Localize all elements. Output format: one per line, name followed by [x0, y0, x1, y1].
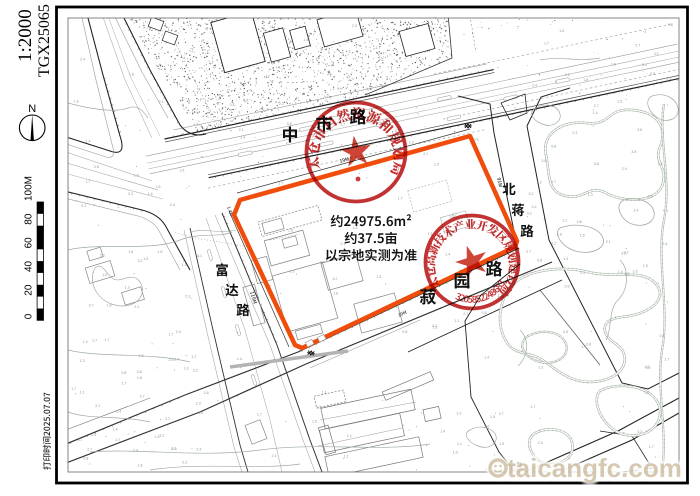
svg-text:1.6: 1.6 — [559, 29, 564, 33]
svg-text:1.1: 1.1 — [80, 391, 85, 395]
svg-text:3.2: 3.2 — [624, 250, 629, 254]
svg-text:2.3: 2.3 — [352, 24, 357, 28]
svg-text:2.3: 2.3 — [538, 441, 543, 445]
svg-text:1.4: 1.4 — [563, 257, 568, 261]
svg-text:2.3: 2.3 — [128, 192, 133, 196]
svg-text:1.8: 1.8 — [658, 162, 663, 166]
svg-text:1.3: 1.3 — [376, 275, 381, 279]
svg-text:1.7: 1.7 — [86, 180, 91, 184]
svg-text:1.4: 1.4 — [148, 192, 153, 196]
svg-text:1.7: 1.7 — [278, 182, 283, 186]
svg-text:2.7: 2.7 — [526, 250, 531, 254]
svg-text:1.1: 1.1 — [344, 454, 349, 458]
svg-text:3.8: 3.8 — [541, 159, 546, 163]
svg-text:0: 0 — [24, 313, 35, 319]
svg-text:N: N — [28, 103, 36, 115]
svg-text:2.7: 2.7 — [340, 123, 345, 127]
svg-text:1.6: 1.6 — [577, 220, 582, 224]
svg-text:1.7: 1.7 — [105, 338, 110, 342]
svg-text:2.3: 2.3 — [565, 73, 570, 77]
svg-text:1.8: 1.8 — [107, 304, 112, 308]
svg-text:1.4: 1.4 — [353, 226, 358, 230]
svg-text:1.7: 1.7 — [191, 355, 196, 359]
svg-text:2.3: 2.3 — [185, 294, 190, 298]
svg-text:0.8: 0.8 — [565, 285, 570, 289]
svg-text:2.2: 2.2 — [100, 254, 105, 258]
svg-text:2.4: 2.4 — [240, 136, 245, 140]
svg-text:3.2: 3.2 — [138, 259, 143, 263]
svg-text:3.8: 3.8 — [94, 165, 99, 169]
svg-text:2.4: 2.4 — [80, 57, 85, 61]
svg-text:2.1: 2.1 — [77, 438, 82, 442]
svg-text:2.7: 2.7 — [89, 303, 94, 307]
svg-text:3.8: 3.8 — [594, 162, 599, 166]
svg-text:1.5: 1.5 — [312, 420, 317, 424]
svg-text:1.1: 1.1 — [347, 434, 352, 438]
svg-text:1.7: 1.7 — [288, 111, 293, 115]
svg-text:3.2: 3.2 — [532, 205, 537, 209]
svg-text:1.6: 1.6 — [156, 185, 161, 189]
svg-text:1.1: 1.1 — [457, 442, 462, 446]
svg-text:2.3: 2.3 — [572, 131, 577, 135]
svg-text:40: 40 — [24, 260, 35, 272]
svg-text:1.6: 1.6 — [557, 232, 562, 236]
svg-text:3.2: 3.2 — [529, 192, 534, 196]
svg-text:1.4: 1.4 — [440, 429, 445, 433]
svg-text:2.4: 2.4 — [133, 448, 138, 452]
svg-text:1.4: 1.4 — [113, 427, 118, 431]
svg-text:2.4: 2.4 — [622, 167, 627, 171]
svg-text:1.4: 1.4 — [484, 356, 489, 360]
svg-text:2.1: 2.1 — [239, 128, 244, 132]
svg-text:1.5: 1.5 — [643, 264, 648, 268]
svg-text:2.2: 2.2 — [537, 181, 542, 185]
svg-text:2.4: 2.4 — [272, 454, 277, 458]
svg-text:1.3: 1.3 — [290, 270, 295, 274]
svg-text:0.8: 0.8 — [482, 311, 487, 315]
svg-text:2.1: 2.1 — [463, 312, 468, 316]
svg-text:1.5: 1.5 — [490, 415, 495, 419]
svg-text:2.2: 2.2 — [279, 102, 284, 106]
svg-text:2.1: 2.1 — [134, 305, 139, 309]
svg-text:3.2: 3.2 — [624, 272, 629, 276]
svg-text:taicangfc.com: taicangfc.com — [507, 453, 682, 483]
svg-text:1.7: 1.7 — [71, 387, 76, 391]
svg-text:2.4: 2.4 — [663, 242, 668, 246]
svg-text:1.4: 1.4 — [445, 252, 450, 256]
svg-text:2.7: 2.7 — [174, 358, 179, 362]
svg-text:1.7: 1.7 — [324, 94, 329, 98]
svg-text:1.1: 1.1 — [197, 254, 202, 258]
svg-text:1.5: 1.5 — [91, 433, 96, 437]
svg-text:3.8: 3.8 — [637, 128, 642, 132]
svg-text:1.8: 1.8 — [102, 273, 107, 277]
svg-text:1.5: 1.5 — [198, 411, 203, 415]
svg-text:1.5: 1.5 — [645, 365, 650, 369]
svg-text:1.7: 1.7 — [122, 382, 127, 386]
svg-text:1.5: 1.5 — [580, 234, 585, 238]
svg-text:1.8: 1.8 — [137, 376, 142, 380]
svg-text:2.2: 2.2 — [667, 77, 672, 81]
svg-text:2.1: 2.1 — [340, 242, 345, 246]
svg-text:1.6: 1.6 — [297, 110, 302, 114]
svg-text:60: 60 — [24, 237, 35, 249]
svg-text:1.5: 1.5 — [288, 229, 293, 233]
svg-text:2.1: 2.1 — [642, 63, 647, 67]
svg-text:1.5: 1.5 — [617, 100, 622, 104]
svg-text:0.8: 0.8 — [668, 23, 673, 27]
svg-text:1.5: 1.5 — [143, 257, 148, 261]
svg-text:0.8: 0.8 — [83, 457, 88, 461]
svg-text:1.7: 1.7 — [115, 438, 120, 442]
svg-text:1.3: 1.3 — [125, 285, 130, 289]
svg-text:1.8: 1.8 — [134, 173, 139, 177]
svg-text:2.2: 2.2 — [551, 241, 556, 245]
svg-text:1.7: 1.7 — [551, 180, 556, 184]
svg-text:2.4: 2.4 — [648, 194, 653, 198]
svg-text:TGX25065: TGX25065 — [36, 4, 53, 77]
svg-text:1.5: 1.5 — [499, 442, 504, 446]
svg-text:1.3: 1.3 — [538, 366, 543, 370]
svg-text:1.1: 1.1 — [322, 390, 327, 394]
svg-text:2.4: 2.4 — [176, 330, 181, 334]
svg-text:1.3: 1.3 — [80, 359, 85, 363]
svg-text:0.8: 0.8 — [551, 145, 556, 149]
svg-text:1.4: 1.4 — [618, 270, 623, 274]
svg-text:2.4: 2.4 — [634, 208, 639, 212]
svg-text:3.8: 3.8 — [137, 370, 142, 374]
svg-text:1.1: 1.1 — [562, 219, 567, 223]
svg-text:1.4: 1.4 — [86, 139, 91, 143]
svg-text:1.5: 1.5 — [128, 250, 133, 254]
svg-text:2.7: 2.7 — [140, 395, 145, 399]
svg-text:1.3: 1.3 — [184, 366, 189, 370]
svg-text:1.6: 1.6 — [433, 326, 438, 330]
svg-text:1.7: 1.7 — [484, 289, 489, 293]
svg-text:1.8: 1.8 — [138, 463, 143, 467]
svg-text:2.3: 2.3 — [196, 402, 201, 406]
svg-text:1.8: 1.8 — [583, 78, 588, 82]
svg-text:1.4: 1.4 — [581, 345, 586, 349]
svg-text:1.5: 1.5 — [434, 163, 439, 167]
svg-text:1.3: 1.3 — [588, 193, 593, 197]
svg-text:1.4: 1.4 — [83, 340, 88, 344]
svg-text:1.6: 1.6 — [129, 72, 134, 76]
svg-text:2.1: 2.1 — [423, 152, 428, 156]
svg-text:1.6: 1.6 — [633, 270, 638, 274]
svg-text:2.7: 2.7 — [376, 46, 381, 50]
svg-text:2.4: 2.4 — [532, 83, 537, 87]
svg-text:3.2: 3.2 — [637, 430, 642, 434]
svg-text:1.7: 1.7 — [649, 445, 654, 449]
svg-text:1.8: 1.8 — [139, 354, 144, 358]
svg-text:2.4: 2.4 — [484, 425, 489, 429]
svg-text:3.8: 3.8 — [631, 150, 636, 154]
svg-text:3.8: 3.8 — [204, 391, 209, 395]
svg-text:1.6: 1.6 — [74, 99, 79, 103]
svg-text:80: 80 — [24, 213, 35, 225]
svg-text:1.7: 1.7 — [664, 357, 669, 361]
svg-text:2.1: 2.1 — [580, 271, 585, 275]
svg-text:1.5: 1.5 — [316, 405, 321, 409]
svg-text:2.7: 2.7 — [499, 412, 504, 416]
svg-text:1:2000: 1:2000 — [15, 9, 36, 62]
svg-text:1.6: 1.6 — [644, 391, 649, 395]
svg-text:2.7: 2.7 — [87, 448, 92, 452]
svg-text:1.4: 1.4 — [237, 357, 242, 361]
svg-text:1.7: 1.7 — [544, 41, 549, 45]
svg-text:1.4: 1.4 — [243, 98, 248, 102]
svg-text:3.2: 3.2 — [159, 434, 164, 438]
svg-text:2.1: 2.1 — [95, 404, 100, 408]
svg-text:0.8: 0.8 — [586, 342, 591, 346]
svg-text:1.6: 1.6 — [611, 62, 616, 66]
svg-text:3.2: 3.2 — [193, 369, 198, 373]
svg-text:2.4: 2.4 — [116, 410, 121, 414]
svg-text:100M: 100M — [24, 176, 35, 201]
svg-text:1.1: 1.1 — [454, 319, 459, 323]
svg-text:1.7: 1.7 — [92, 339, 97, 343]
svg-text:3.2: 3.2 — [654, 52, 659, 56]
svg-text:2.1: 2.1 — [81, 204, 86, 208]
svg-text:1.6: 1.6 — [179, 169, 184, 173]
svg-text:2.1: 2.1 — [606, 240, 611, 244]
svg-text:2.3: 2.3 — [196, 448, 201, 452]
svg-text:2.4: 2.4 — [170, 203, 175, 207]
svg-text:2.1: 2.1 — [159, 100, 164, 104]
svg-text:0.8: 0.8 — [659, 334, 664, 338]
svg-text:0.8: 0.8 — [402, 330, 407, 334]
svg-text:1.7: 1.7 — [530, 405, 535, 409]
svg-text:1.8: 1.8 — [333, 292, 338, 296]
svg-text:2.2: 2.2 — [182, 460, 187, 464]
svg-text:1.6: 1.6 — [157, 250, 162, 254]
svg-text:2.7: 2.7 — [165, 417, 170, 421]
svg-text:1.7: 1.7 — [398, 197, 403, 201]
svg-text:1.4: 1.4 — [593, 111, 598, 115]
svg-text:1.3: 1.3 — [409, 140, 414, 144]
svg-text:3.8: 3.8 — [563, 330, 568, 334]
svg-text:2.7: 2.7 — [594, 104, 599, 108]
svg-text:1.7: 1.7 — [168, 333, 173, 337]
svg-text:3.2: 3.2 — [332, 277, 337, 281]
svg-text:0.8: 0.8 — [537, 258, 542, 262]
svg-text:1.1: 1.1 — [182, 263, 187, 267]
svg-text:1.8: 1.8 — [172, 447, 177, 451]
svg-text:2.7: 2.7 — [635, 44, 640, 48]
svg-text:0.8: 0.8 — [121, 371, 126, 375]
svg-text:0.8: 0.8 — [287, 122, 292, 126]
svg-text:1.7: 1.7 — [257, 412, 262, 416]
svg-text:1.3: 1.3 — [456, 411, 461, 415]
svg-text:1.4: 1.4 — [155, 56, 160, 60]
svg-text:3.2: 3.2 — [527, 212, 532, 216]
svg-text:0.8: 0.8 — [650, 72, 655, 76]
svg-text:1.4: 1.4 — [303, 38, 308, 42]
svg-text:20: 20 — [24, 284, 35, 296]
svg-text:1.5: 1.5 — [453, 451, 458, 455]
svg-text:0.8: 0.8 — [230, 103, 235, 107]
svg-text:2.4: 2.4 — [169, 358, 174, 362]
